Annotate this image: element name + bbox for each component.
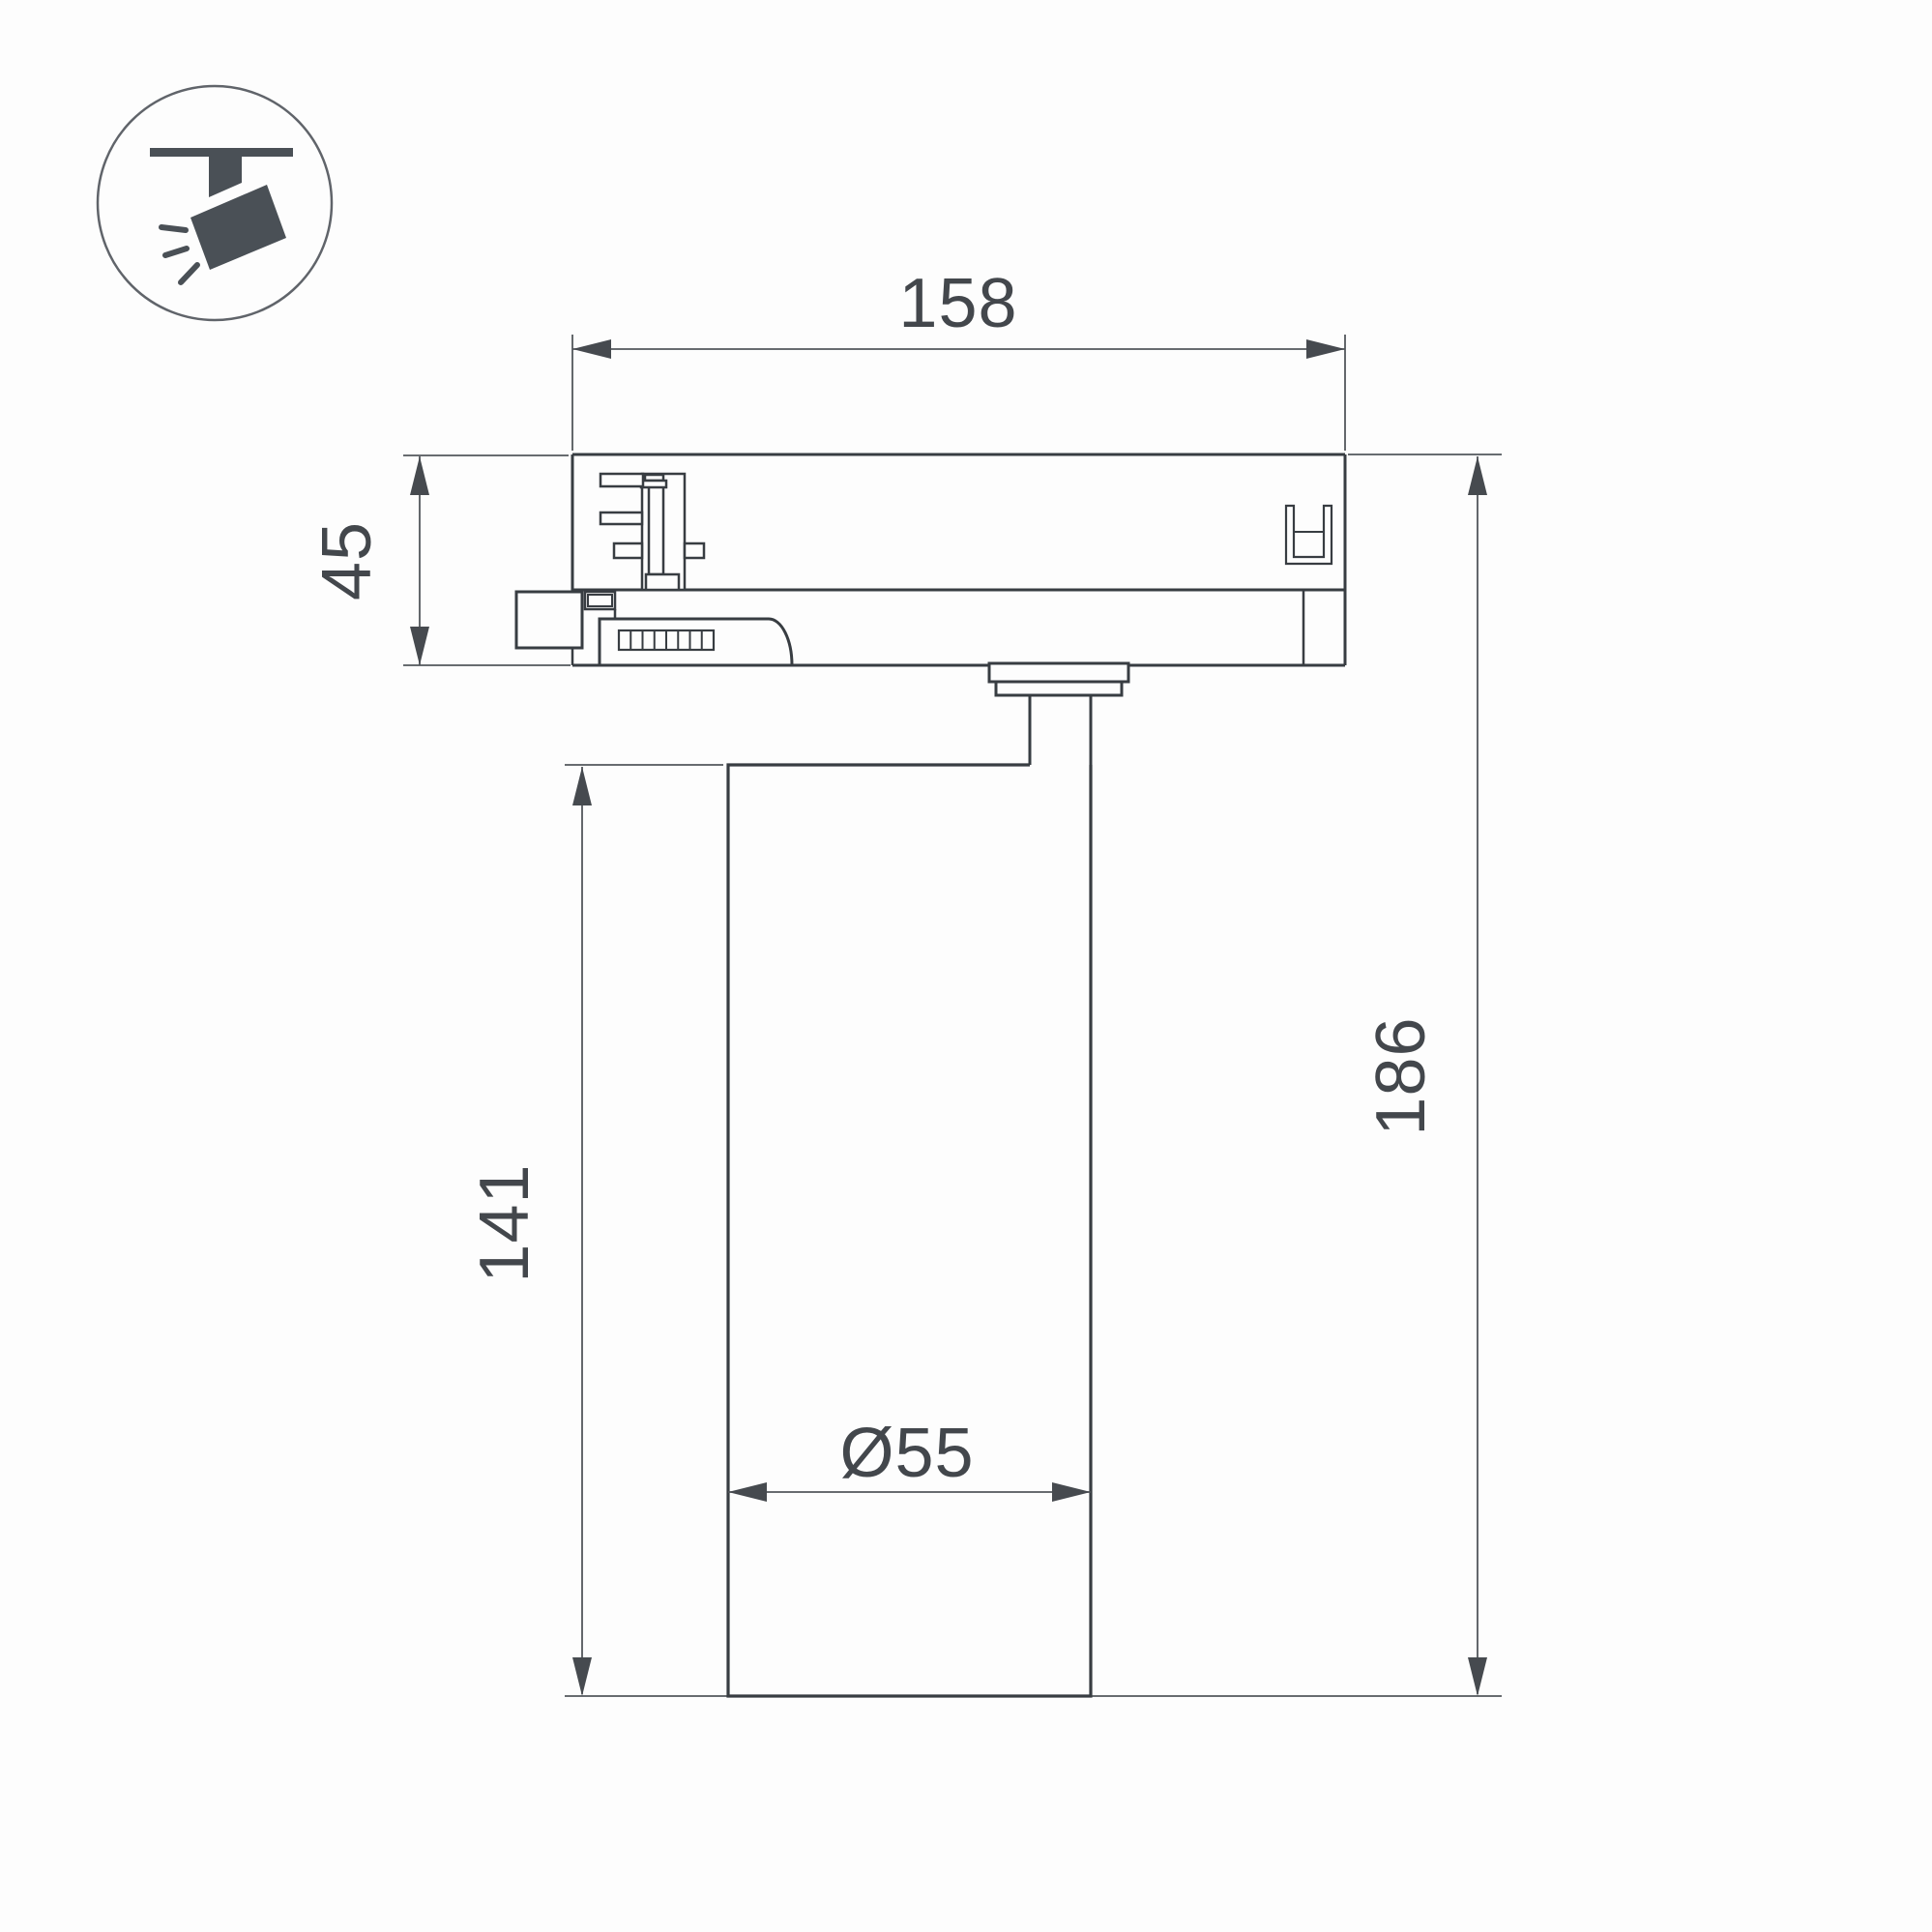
ground-clip xyxy=(1286,506,1332,564)
dim-label-45: 45 xyxy=(308,521,386,600)
contact-foot xyxy=(646,574,679,590)
dimension-drawing: 158 45 141 186 Ø55 xyxy=(0,0,1932,1932)
knuckle-step-2 xyxy=(996,682,1122,695)
lamp-body xyxy=(728,765,1091,1696)
track-light-icon xyxy=(98,86,332,320)
arrow-158-right xyxy=(1306,339,1345,359)
arrow-186-down xyxy=(1468,1657,1487,1696)
contact-prong-3 xyxy=(614,543,642,558)
dim-body-height: 141 xyxy=(466,767,592,1696)
knuckle-step-1 xyxy=(989,663,1128,682)
dim-adapter-height: 45 xyxy=(308,456,429,665)
ground-clip-outline xyxy=(1286,506,1332,564)
contact-prong-1 xyxy=(600,474,643,486)
arrow-186-up xyxy=(1468,456,1487,495)
dim-adapter-width: 158 xyxy=(572,265,1345,359)
pivot-knuckle xyxy=(989,663,1128,765)
icon-track-bar xyxy=(150,148,293,157)
arrow-141-up xyxy=(572,767,592,805)
dim-label-158: 158 xyxy=(898,265,1017,342)
contact-side-tab xyxy=(685,543,704,558)
contact-prong-2 xyxy=(600,512,642,524)
arrow-55-right xyxy=(1052,1482,1091,1502)
contact-block xyxy=(600,474,704,590)
dim-label-55: Ø55 xyxy=(839,1415,974,1492)
arrow-141-down xyxy=(572,1657,592,1696)
arrow-45-down xyxy=(410,627,429,665)
dim-label-141: 141 xyxy=(466,1163,543,1282)
contact-rod xyxy=(649,485,663,574)
arrow-55-left xyxy=(728,1482,767,1502)
arrow-158-left xyxy=(572,339,611,359)
dim-label-186: 186 xyxy=(1362,1016,1440,1135)
contact-cap-base xyxy=(641,481,666,487)
drawing-page: 158 45 141 186 Ø55 xyxy=(0,0,1932,1932)
latch-block xyxy=(516,592,582,648)
icon-circle xyxy=(98,86,332,320)
dim-body-diameter: Ø55 xyxy=(728,1415,1091,1502)
dim-total-height: 186 xyxy=(1362,456,1487,1696)
latch-assembly xyxy=(516,592,792,665)
arrow-45-up xyxy=(410,456,429,495)
